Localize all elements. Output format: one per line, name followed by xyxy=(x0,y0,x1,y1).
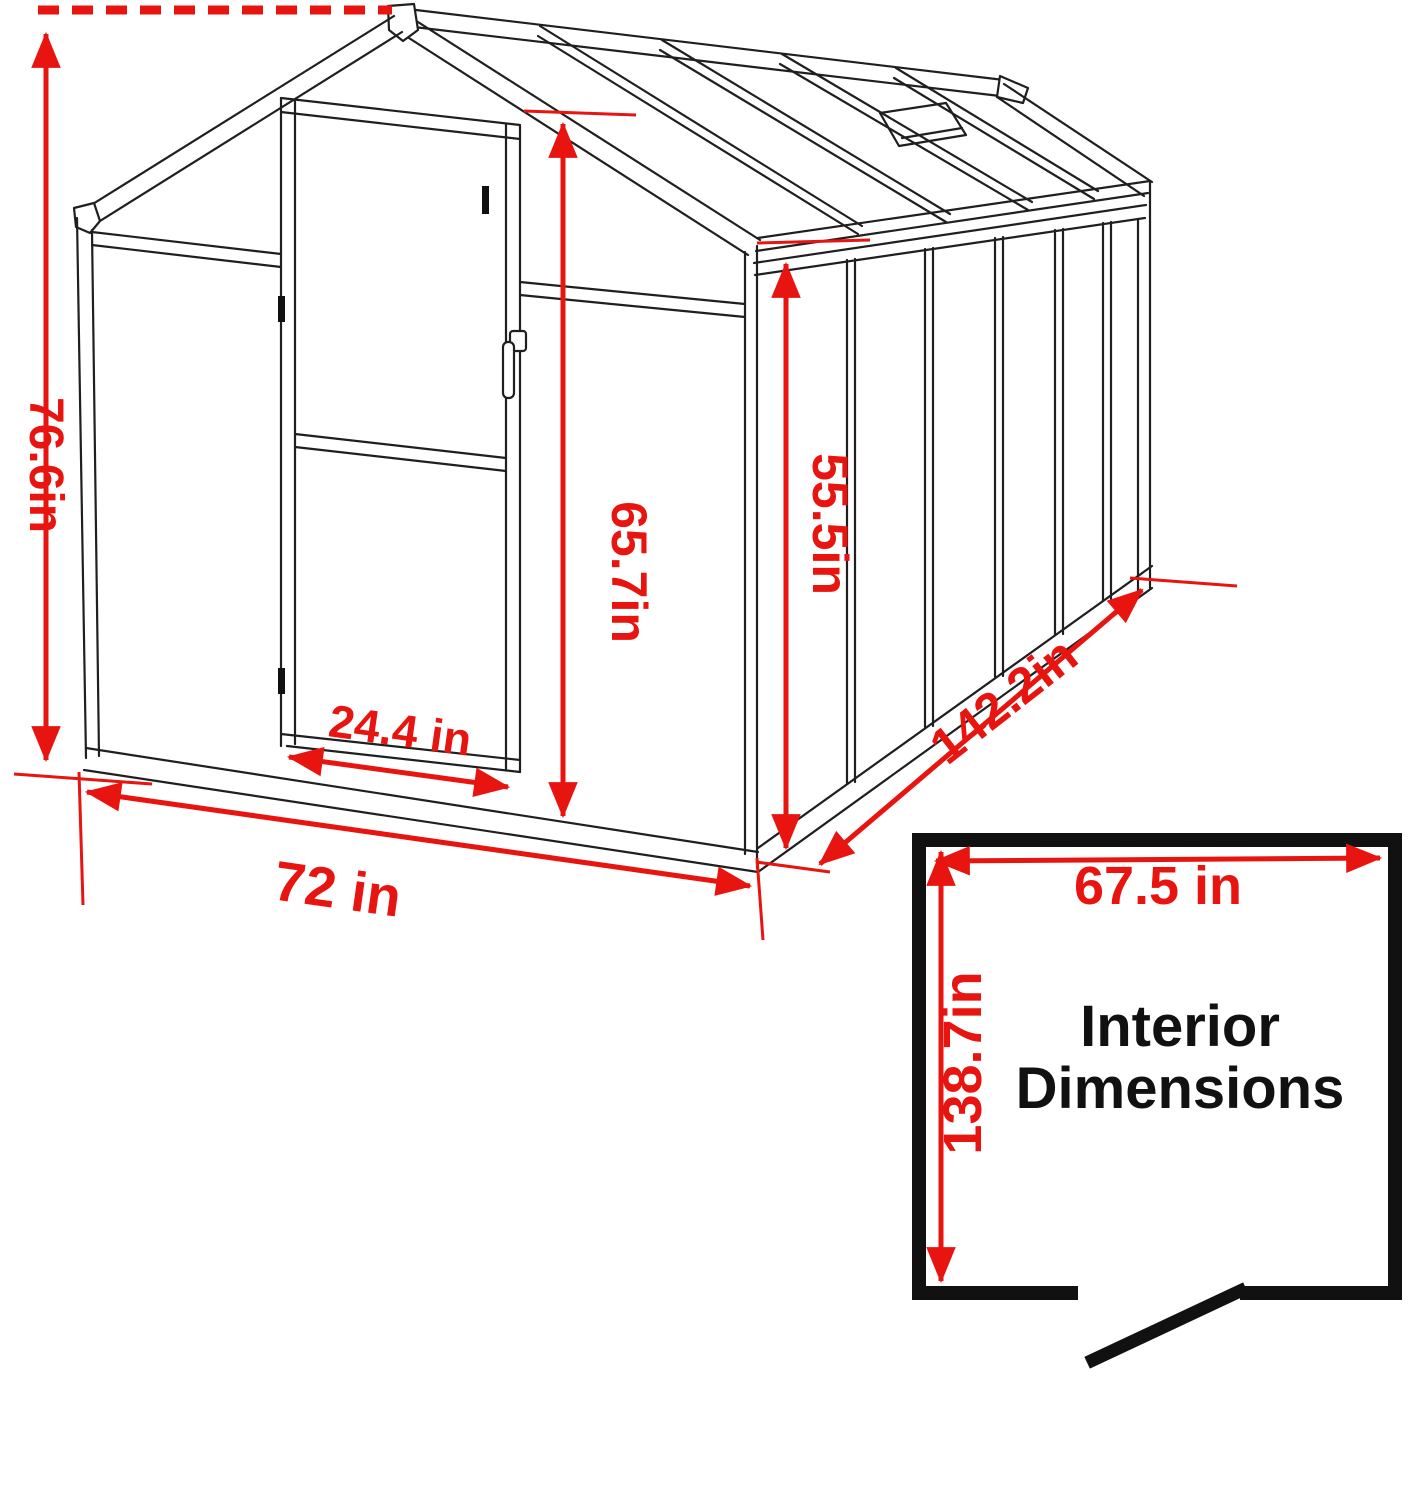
door-hinge-lower xyxy=(278,668,285,694)
door-hinge-upper xyxy=(278,296,285,322)
interior-floor-plan: 67.5 in 138.7in Interior Dimensions xyxy=(919,840,1395,1360)
interior-title-line1: Interior xyxy=(1080,994,1280,1059)
overall-height-label: 76.6in xyxy=(19,397,72,533)
dim-overall-height: 76.6in xyxy=(14,10,392,784)
dimension-annotations: 76.6in 65.7in 55.5in 24.4 in 72 in xyxy=(14,10,1237,940)
front-width-label: 72 in xyxy=(270,849,405,929)
dim-front-width: 72 in xyxy=(79,772,830,940)
side-wall-height-label: 55.5in xyxy=(802,453,858,595)
door xyxy=(278,98,526,772)
diagram-canvas: 76.6in 65.7in 55.5in 24.4 in 72 in xyxy=(0,0,1414,1500)
dim-door-width: 24.4 in xyxy=(289,694,508,787)
interior-width-label: 67.5 in xyxy=(1074,856,1242,916)
roof-panels xyxy=(398,10,1152,263)
floor-plan-door-leaf xyxy=(1093,1291,1240,1360)
dim-side-wall-height: 55.5in xyxy=(757,240,870,848)
interior-title-line2: Dimensions xyxy=(1016,1056,1345,1121)
door-latch-mark xyxy=(482,186,489,214)
dim-interior-depth: 138.7in xyxy=(933,852,993,1281)
dim-door-height: 65.7in xyxy=(524,111,657,816)
door-height-label: 65.7in xyxy=(601,501,657,643)
interior-depth-label: 138.7in xyxy=(933,971,993,1154)
roof-vent xyxy=(880,103,966,146)
dim-depth: 142.2in xyxy=(820,578,1237,864)
dim-interior-width: 67.5 in xyxy=(936,856,1380,916)
door-width-label: 24.4 in xyxy=(326,694,475,765)
ridge-connector xyxy=(388,4,418,41)
greenhouse-dimension-diagram: 76.6in 65.7in 55.5in 24.4 in 72 in xyxy=(0,0,1414,1500)
